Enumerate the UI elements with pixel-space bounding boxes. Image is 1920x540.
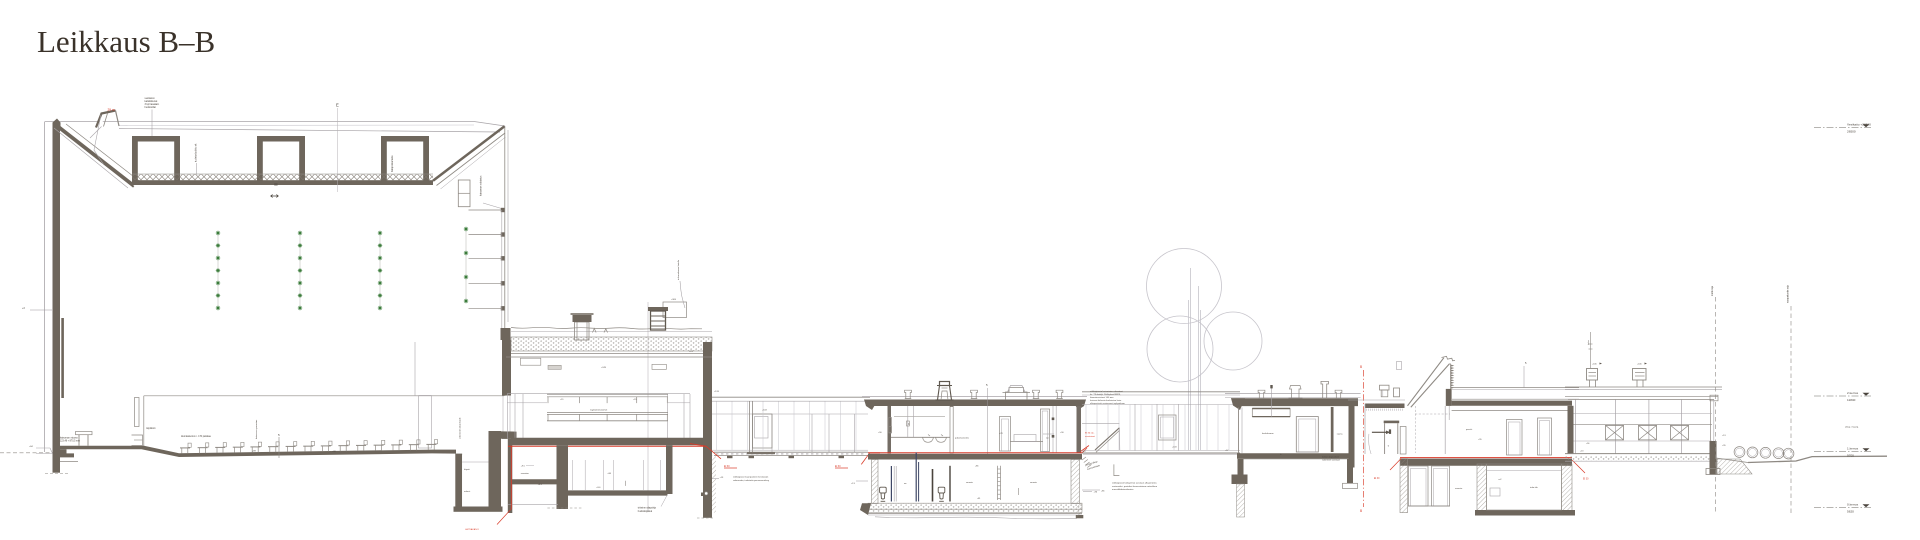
svg-text:varasto: varasto [1455,487,1463,490]
svg-text:EI 30 rak.: EI 30 rak. [1085,432,1095,435]
svg-text:Vesikatto +26500: Vesikatto +26500 [1847,123,1871,127]
svg-text:näyttämönostimet: näyttämönostimet [590,408,608,411]
svg-text:5620: 5620 [1847,510,1854,514]
svg-text:osastoivat: osastoivat [1085,435,1095,438]
svg-text:alkup. maanp.: alkup. maanp. [1845,427,1859,429]
svg-text:tekninen alapohja: tekninen alapohja [638,507,657,510]
svg-text:naapuritontin raja: naapuritontin raja [1787,285,1790,303]
svg-text:E: E [336,103,339,108]
svg-text:käynti: käynti [464,468,470,471]
svg-text:B: B [1360,365,1362,369]
svg-text:näyttämö: näyttämö [146,427,156,430]
svg-text:mosaiikkibetonilaatoin: mosaiikkibetonilaatoin [1112,488,1134,491]
svg-text:istuinkatsomo n. 170 paikkaa: istuinkatsomo n. 170 paikkaa [181,435,211,438]
svg-text:+245: +245 [601,367,607,369]
svg-text:rakenteet uusitaan: rakenteet uusitaan [1322,459,1341,462]
svg-text:2.kerros: 2.kerros [1847,391,1859,395]
svg-text:EI 30: EI 30 [1583,479,1589,481]
svg-text:pesuh.: pesuh. [1466,429,1473,431]
svg-text:EI 30: EI 30 [835,465,841,468]
svg-text:sauna: sauna [1337,433,1344,435]
svg-text:lattian alapuoliset: lattian alapuoliset [1322,456,1339,459]
svg-text:26500: 26500 [1847,130,1856,134]
svg-text:tekn.tila: tekn.tila [1530,486,1538,489]
svg-text:katsomon etuosa: katsomon etuosa [60,437,78,440]
svg-text:9700: 9700 [1847,454,1854,458]
svg-text:varasto: varasto [966,481,974,484]
svg-text:huoltokäytävä: huoltokäytävä [638,510,653,513]
svg-text:Leikkaus B–B: Leikkaus B–B [37,24,215,59]
svg-text:lämmöneristeet 140 mm: lämmöneristeet 140 mm [1090,396,1114,399]
svg-text:lasiosat kirkasta karkaistua l: lasiosat kirkasta karkaistua lasia [1090,399,1122,402]
svg-text:ks. T3 detaljit. Pellitykset R: ks. T3 detaljit. Pellitykset RR23, [1090,393,1121,396]
svg-text:vastaaviksi, portaikot kunnost: vastaaviksi, portaikot kunnostetaan enti… [1112,485,1158,488]
svg-text:1.kerros: 1.kerros [1847,447,1859,451]
svg-text:pukuhuone/wc: pukuhuone/wc [955,438,970,440]
svg-text:+120: +120 [714,391,720,393]
svg-text:EI 30: EI 30 [724,465,730,468]
svg-text:huoltosillat: huoltosillat [145,106,157,109]
svg-text:EI 30: EI 30 [1374,478,1380,480]
svg-text:tontin raja: tontin raja [1711,285,1714,296]
svg-text:orkest.: orkest. [464,490,471,493]
svg-text:B: B [1360,509,1362,513]
svg-text:tuuletusluukku sk: tuuletusluukku sk [195,143,198,162]
svg-text:kerhohuone: kerhohuone [1262,432,1274,435]
svg-text:katsomon valaistus: katsomon valaistus [480,175,483,196]
svg-text:rakennetta, tuuletettu perusmu: rakennetta, tuuletettu perusmuurilevy [733,479,770,482]
svg-text:iv-konehuone katolle: iv-konehuone katolle [677,259,680,280]
svg-text:11840: 11840 [1847,398,1856,402]
svg-text:katsomon porrastus: katsomon porrastus [255,419,258,439]
svg-text:hätäpoistumistie: hätäpoistumistie [391,155,394,172]
svg-text:välikäytävän lasiseinien raken: välikäytävän lasiseinien rakenteet [1090,390,1123,393]
svg-text:+305: +305 [671,299,677,301]
svg-text:välikäytävän lattiapinnat uusi: välikäytävän lattiapinnat uusitaan alkup… [1112,482,1157,485]
svg-text:0.kerros: 0.kerros [1847,503,1859,507]
svg-text:varasto: varasto [1030,481,1038,484]
svg-text:29 m: 29 m [108,108,115,112]
svg-text:orkesterimontun kaide: orkesterimontun kaide [459,417,462,439]
svg-text:varastoa: varastoa [521,472,530,475]
svg-text:ik: ik [1280,454,1281,456]
svg-text:var: var [1046,437,1049,440]
svg-text:LATTIAKAIVO: LATTIAKAIVO [465,528,479,531]
svg-text:123,48 + 870,5 mm: 123,48 + 870,5 mm [60,441,80,443]
svg-text:välikäytävä maanpaineen kestäv: välikäytävä maanpaineen kestävään [733,476,769,479]
